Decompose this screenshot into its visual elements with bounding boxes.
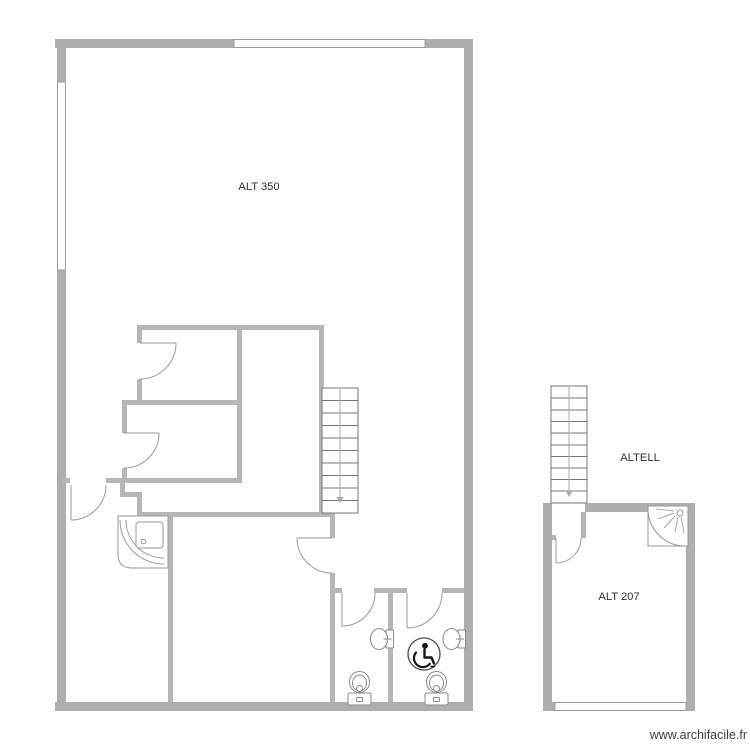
corner-shower-icon bbox=[648, 506, 688, 546]
door-swing-icon bbox=[71, 485, 106, 520]
wall-vestibule-stub bbox=[552, 535, 556, 540]
wall-room1-left-b bbox=[137, 379, 142, 400]
wall-right bbox=[464, 39, 473, 711]
wall-jog-c bbox=[137, 497, 142, 512]
wall-room1-left-a bbox=[137, 330, 142, 343]
doors bbox=[71, 343, 442, 628]
wall-vestibule-right bbox=[581, 512, 586, 538]
toilet-icon bbox=[425, 672, 448, 706]
main-building-outer-walls bbox=[55, 39, 473, 711]
floor-plan-drawing: ALT 350 ALTELL ALT 207 www.archifacile.f… bbox=[0, 0, 750, 750]
wall-annex-left bbox=[543, 503, 552, 711]
wall-wc-top-b bbox=[374, 588, 407, 593]
annex-interior-walls bbox=[552, 512, 586, 540]
wall-wc-top-c bbox=[442, 588, 464, 593]
window-icon bbox=[555, 703, 686, 711]
sink-icon bbox=[443, 629, 466, 650]
room-label-alt-350: ALT 350 bbox=[238, 181, 279, 193]
window-icon bbox=[58, 82, 66, 270]
wall-lower-left-b bbox=[106, 478, 242, 483]
toilet-icon bbox=[348, 672, 371, 706]
door-swing-icon bbox=[124, 433, 159, 468]
wall-room1-top bbox=[137, 325, 324, 330]
door-swing-icon bbox=[407, 593, 442, 628]
wall-bottom bbox=[55, 702, 473, 711]
wall-jog-b bbox=[120, 492, 142, 497]
sink-icon bbox=[371, 629, 394, 650]
floor-plan-canvas: ALT 350 ALTELL ALT 207 www.archifacile.f… bbox=[0, 0, 750, 750]
wall-c-vertical bbox=[168, 517, 173, 702]
wall-wc-top-a bbox=[335, 588, 342, 593]
shower-cabin-icon bbox=[118, 516, 168, 568]
window-icon bbox=[234, 40, 425, 48]
interior-walls bbox=[62, 325, 464, 702]
watermark-link[interactable]: www.archifacile.fr bbox=[649, 728, 747, 742]
wall-room2-left-b bbox=[122, 468, 127, 478]
door-swing-icon bbox=[297, 538, 332, 573]
stairs-icon bbox=[551, 386, 587, 503]
wc-left-fixtures bbox=[348, 629, 394, 706]
door-swing-icon bbox=[140, 343, 176, 379]
wall-lower-left-a bbox=[62, 478, 70, 483]
door-swing-icon bbox=[342, 593, 375, 626]
wheelchair-accessible-icon bbox=[408, 638, 440, 670]
wall-room-divider-h bbox=[122, 400, 240, 405]
stairs-icon bbox=[322, 388, 358, 513]
wall-v2-upper bbox=[330, 517, 335, 538]
door-swing-icon bbox=[556, 538, 581, 563]
wc-right-fixtures bbox=[408, 629, 466, 706]
wall-v2-lower bbox=[330, 573, 335, 702]
room-label-alt-207: ALT 207 bbox=[598, 591, 639, 603]
wall-rooms-right bbox=[237, 330, 242, 478]
wall-room2-left-a bbox=[122, 405, 127, 433]
room-label-altell: ALTELL bbox=[620, 452, 660, 464]
